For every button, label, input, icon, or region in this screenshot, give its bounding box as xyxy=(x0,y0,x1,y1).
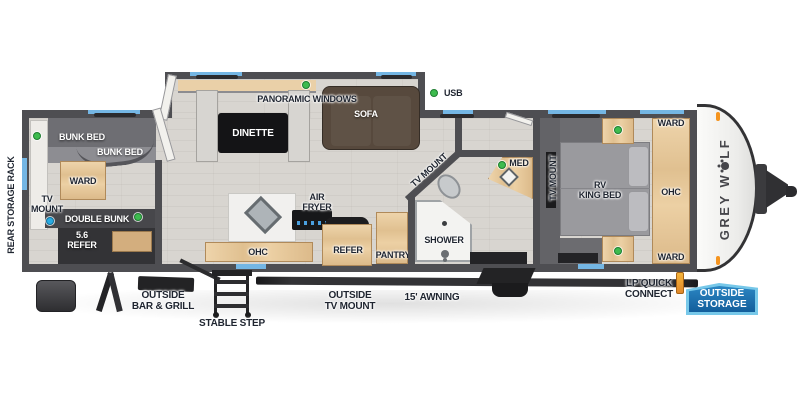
tv-mount-indicator-icon xyxy=(46,217,54,225)
bunk-tv-mount-line2: MOUNT xyxy=(27,204,67,214)
air-fryer-line1: AIR xyxy=(292,192,342,202)
bar-grill-line1: OUTSIDE xyxy=(113,290,213,301)
outside-storage-line1: OUTSIDE xyxy=(700,288,744,299)
stable-step-rung2 xyxy=(214,292,249,296)
hitch-jack xyxy=(755,164,767,214)
bedroom-partition-wall xyxy=(533,118,540,264)
bedroom-corner-top xyxy=(560,118,602,144)
king-bed-line1: RV xyxy=(565,180,635,190)
rear-storage-rack-cargo xyxy=(36,280,76,312)
bunk-tv-mount-label: TV MOUNT xyxy=(27,194,67,214)
stable-step-rung1 xyxy=(214,280,249,284)
window-slot-slide-right xyxy=(381,75,412,79)
lp-line1: LP QUICK xyxy=(604,278,694,289)
green-indicator-icon xyxy=(614,126,622,134)
usb-label: USB xyxy=(444,88,474,98)
hitch-coupler xyxy=(786,186,797,197)
green-indicator-icon xyxy=(33,132,41,140)
stable-step-label: STABLE STEP xyxy=(182,318,282,329)
usb-indicator-icon xyxy=(430,89,438,97)
grey-wolf-logo: GREY WLF xyxy=(717,109,735,269)
outside-storage-badge: OUTSIDE STORAGE xyxy=(686,283,758,315)
bunk-refer-label: 5.6 REFER xyxy=(57,230,107,250)
paw-icon xyxy=(721,162,729,170)
bath-top-wall xyxy=(455,150,540,157)
hitch-frame xyxy=(766,170,788,208)
kitchen-refer-label: REFER xyxy=(323,245,373,255)
window-slot-slide-left xyxy=(196,75,238,79)
outside-storage-badge-face: OUTSIDE STORAGE xyxy=(689,286,755,312)
bath-connector-wall xyxy=(455,118,462,154)
green-indicator-icon xyxy=(302,81,310,89)
bunk-tv-mount-line1: TV xyxy=(27,194,67,204)
lp-line2: CONNECT xyxy=(604,289,694,300)
bunk-refer-line2: REFER xyxy=(57,240,107,250)
stable-step-rung3 xyxy=(214,304,249,308)
rv-floorplan: BUNK BED BUNK BED WARD TV MOUNT DOUBLE B… xyxy=(0,0,800,400)
entry2-fold-step xyxy=(476,268,535,284)
green-indicator-icon xyxy=(134,213,142,221)
ward-top-label: WARD xyxy=(653,118,689,128)
sofa-label: SOFA xyxy=(336,109,396,119)
bar-grill-line2: BAR & GRILL xyxy=(113,301,213,312)
bunk-ward-label: WARD xyxy=(58,176,108,186)
bunk-refer-line1: 5.6 xyxy=(57,230,107,240)
green-indicator-icon xyxy=(614,247,622,255)
entry-door-threshold xyxy=(236,264,266,269)
bath-left-wall xyxy=(408,196,415,264)
shower-drain xyxy=(442,221,447,226)
panoramic-windows-label: PANORAMIC WINDOWS xyxy=(237,94,377,104)
front-wall xyxy=(690,110,697,272)
bedroom-step xyxy=(558,253,598,263)
dinette-label: DINETTE xyxy=(232,128,273,139)
awning-label: 15' AWNING xyxy=(382,292,482,303)
bedroom-ohc-label: OHC xyxy=(653,187,689,197)
double-bunk-label: DOUBLE BUNK xyxy=(62,214,132,224)
window-front-top xyxy=(640,110,684,114)
window-bedroom-bottom xyxy=(578,264,604,269)
entry2-fold-step-lower xyxy=(492,283,528,297)
dinette-table: DINETTE xyxy=(218,113,288,153)
air-fryer-label: AIR FRYER xyxy=(292,192,342,212)
kitchen-ohc-label: OHC xyxy=(233,247,283,257)
lp-quick-connect-label: LP QUICK CONNECT xyxy=(604,278,694,300)
bedroom-tv-mount-label: TV MOUNT xyxy=(548,147,558,209)
outside-bar-grill-label: OUTSIDE BAR & GRILL xyxy=(113,290,213,312)
dinette-bench-left xyxy=(196,90,218,162)
ward-bottom-label: WARD xyxy=(653,252,689,262)
shower-head-icon xyxy=(441,250,449,258)
bunkroom-refer-counter xyxy=(112,231,152,252)
logo-text-before: GREY W xyxy=(717,173,732,241)
window-slot-bunk xyxy=(94,113,136,117)
outside-storage-line2: STORAGE xyxy=(697,299,746,310)
king-bed-line2: KING BED xyxy=(565,190,635,200)
rear-storage-rack-label: REAR STORAGE RACK xyxy=(6,145,16,265)
shower-label: SHOWER xyxy=(418,235,470,245)
bunk-bed-lower-label: BUNK BED xyxy=(85,147,155,157)
bunkroom-wall xyxy=(155,160,162,264)
bunk-bed-upper-label: BUNK BED xyxy=(47,132,117,142)
entry2-platform xyxy=(470,252,527,264)
logo-text-after: LF xyxy=(717,138,732,159)
window-rear-side xyxy=(22,158,27,190)
air-fryer-line2: FRYER xyxy=(292,202,342,212)
king-bed-label: RV KING BED xyxy=(565,180,635,200)
sofa-cushion-right xyxy=(373,96,411,146)
med-label: MED xyxy=(503,158,535,168)
rear-wall xyxy=(22,110,29,272)
